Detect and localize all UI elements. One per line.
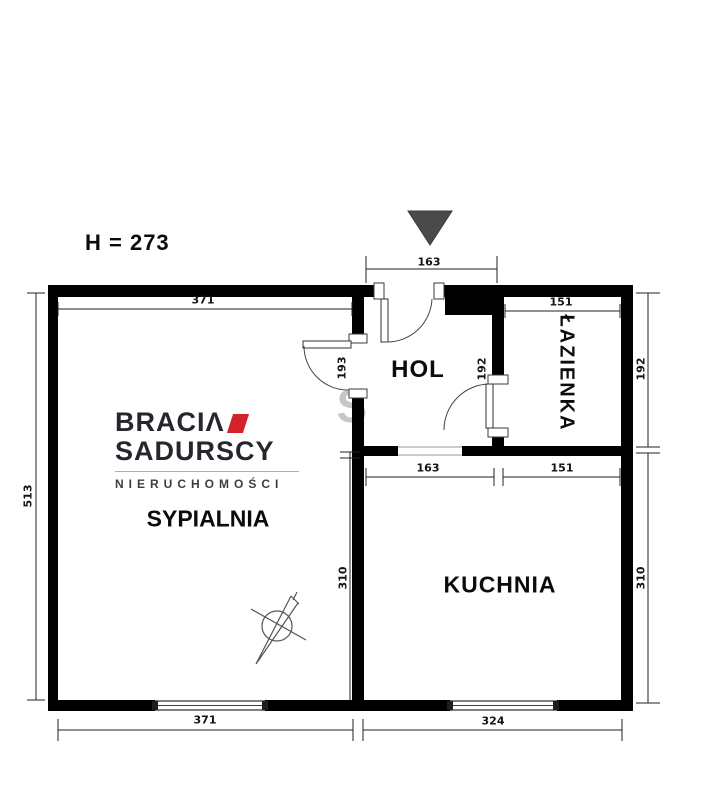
window-bedroom bbox=[152, 701, 268, 710]
wall-divider-bottom bbox=[352, 393, 364, 700]
chimney-block bbox=[445, 297, 496, 315]
wall-top-right bbox=[437, 285, 633, 297]
room-label-hall: HOL bbox=[391, 356, 445, 384]
dim-hall-left-height: 193 bbox=[336, 357, 349, 380]
wall-bottom-3 bbox=[557, 700, 633, 711]
agency-logo: BRACIΛ SADURSCY NIERUCHOMOŚCI bbox=[115, 409, 301, 491]
door-entrance bbox=[381, 299, 432, 342]
dim-hall-width: 163 bbox=[417, 462, 440, 475]
logo-line-1: BRACIΛ bbox=[115, 409, 301, 436]
dim-bathroom-height-right: 192 bbox=[635, 358, 648, 381]
room-label-bathroom: ŁAZIENKA bbox=[555, 314, 578, 431]
door-bathroom bbox=[444, 384, 493, 430]
dim-hall-right-height: 192 bbox=[476, 358, 489, 381]
dim-kitchen-height-left: 310 bbox=[337, 567, 350, 590]
wall-left bbox=[48, 285, 58, 711]
passage-opening bbox=[398, 447, 462, 455]
wall-bottom-2 bbox=[265, 700, 450, 711]
entrance-triangle-icon bbox=[408, 211, 452, 245]
wall-horizontal-right bbox=[462, 446, 621, 456]
dim-entry-door-width: 163 bbox=[418, 256, 441, 269]
wall-right bbox=[621, 285, 633, 711]
logo-brand-top: BRACIΛ bbox=[115, 409, 225, 436]
room-label-kitchen: KUCHNIA bbox=[443, 572, 556, 599]
dim-kitchen-width-bottom: 324 bbox=[482, 715, 505, 728]
dim-kitchen-height-right: 310 bbox=[635, 567, 648, 590]
window-kitchen bbox=[447, 701, 559, 710]
logo-red-flag-icon bbox=[226, 414, 248, 433]
floor-plan-page: S bbox=[0, 0, 719, 800]
wall-divider-top bbox=[352, 297, 364, 338]
dim-bathroom-width-bottom: 151 bbox=[551, 462, 574, 475]
wall-horizontal-left bbox=[364, 446, 398, 456]
floor-plan-drawing bbox=[0, 0, 719, 800]
ceiling-height-label: H = 273 bbox=[85, 230, 170, 256]
wall-bottom-1 bbox=[48, 700, 155, 711]
dim-left-total-height: 513 bbox=[22, 485, 35, 508]
north-arrow-icon bbox=[251, 592, 306, 664]
dim-bedroom-width-bottom: 371 bbox=[194, 714, 217, 727]
logo-subtitle: NIERUCHOMOŚCI bbox=[115, 477, 301, 491]
walls bbox=[48, 285, 633, 711]
dim-bathroom-width-top: 151 bbox=[550, 296, 573, 309]
logo-brand-bottom: SADURSCY bbox=[115, 438, 301, 465]
logo-divider bbox=[115, 471, 299, 472]
wall-bathroom-bottom bbox=[492, 437, 504, 446]
room-label-bedroom: SYPIALNIA bbox=[147, 506, 270, 533]
dim-bedroom-width-top: 371 bbox=[192, 294, 215, 307]
